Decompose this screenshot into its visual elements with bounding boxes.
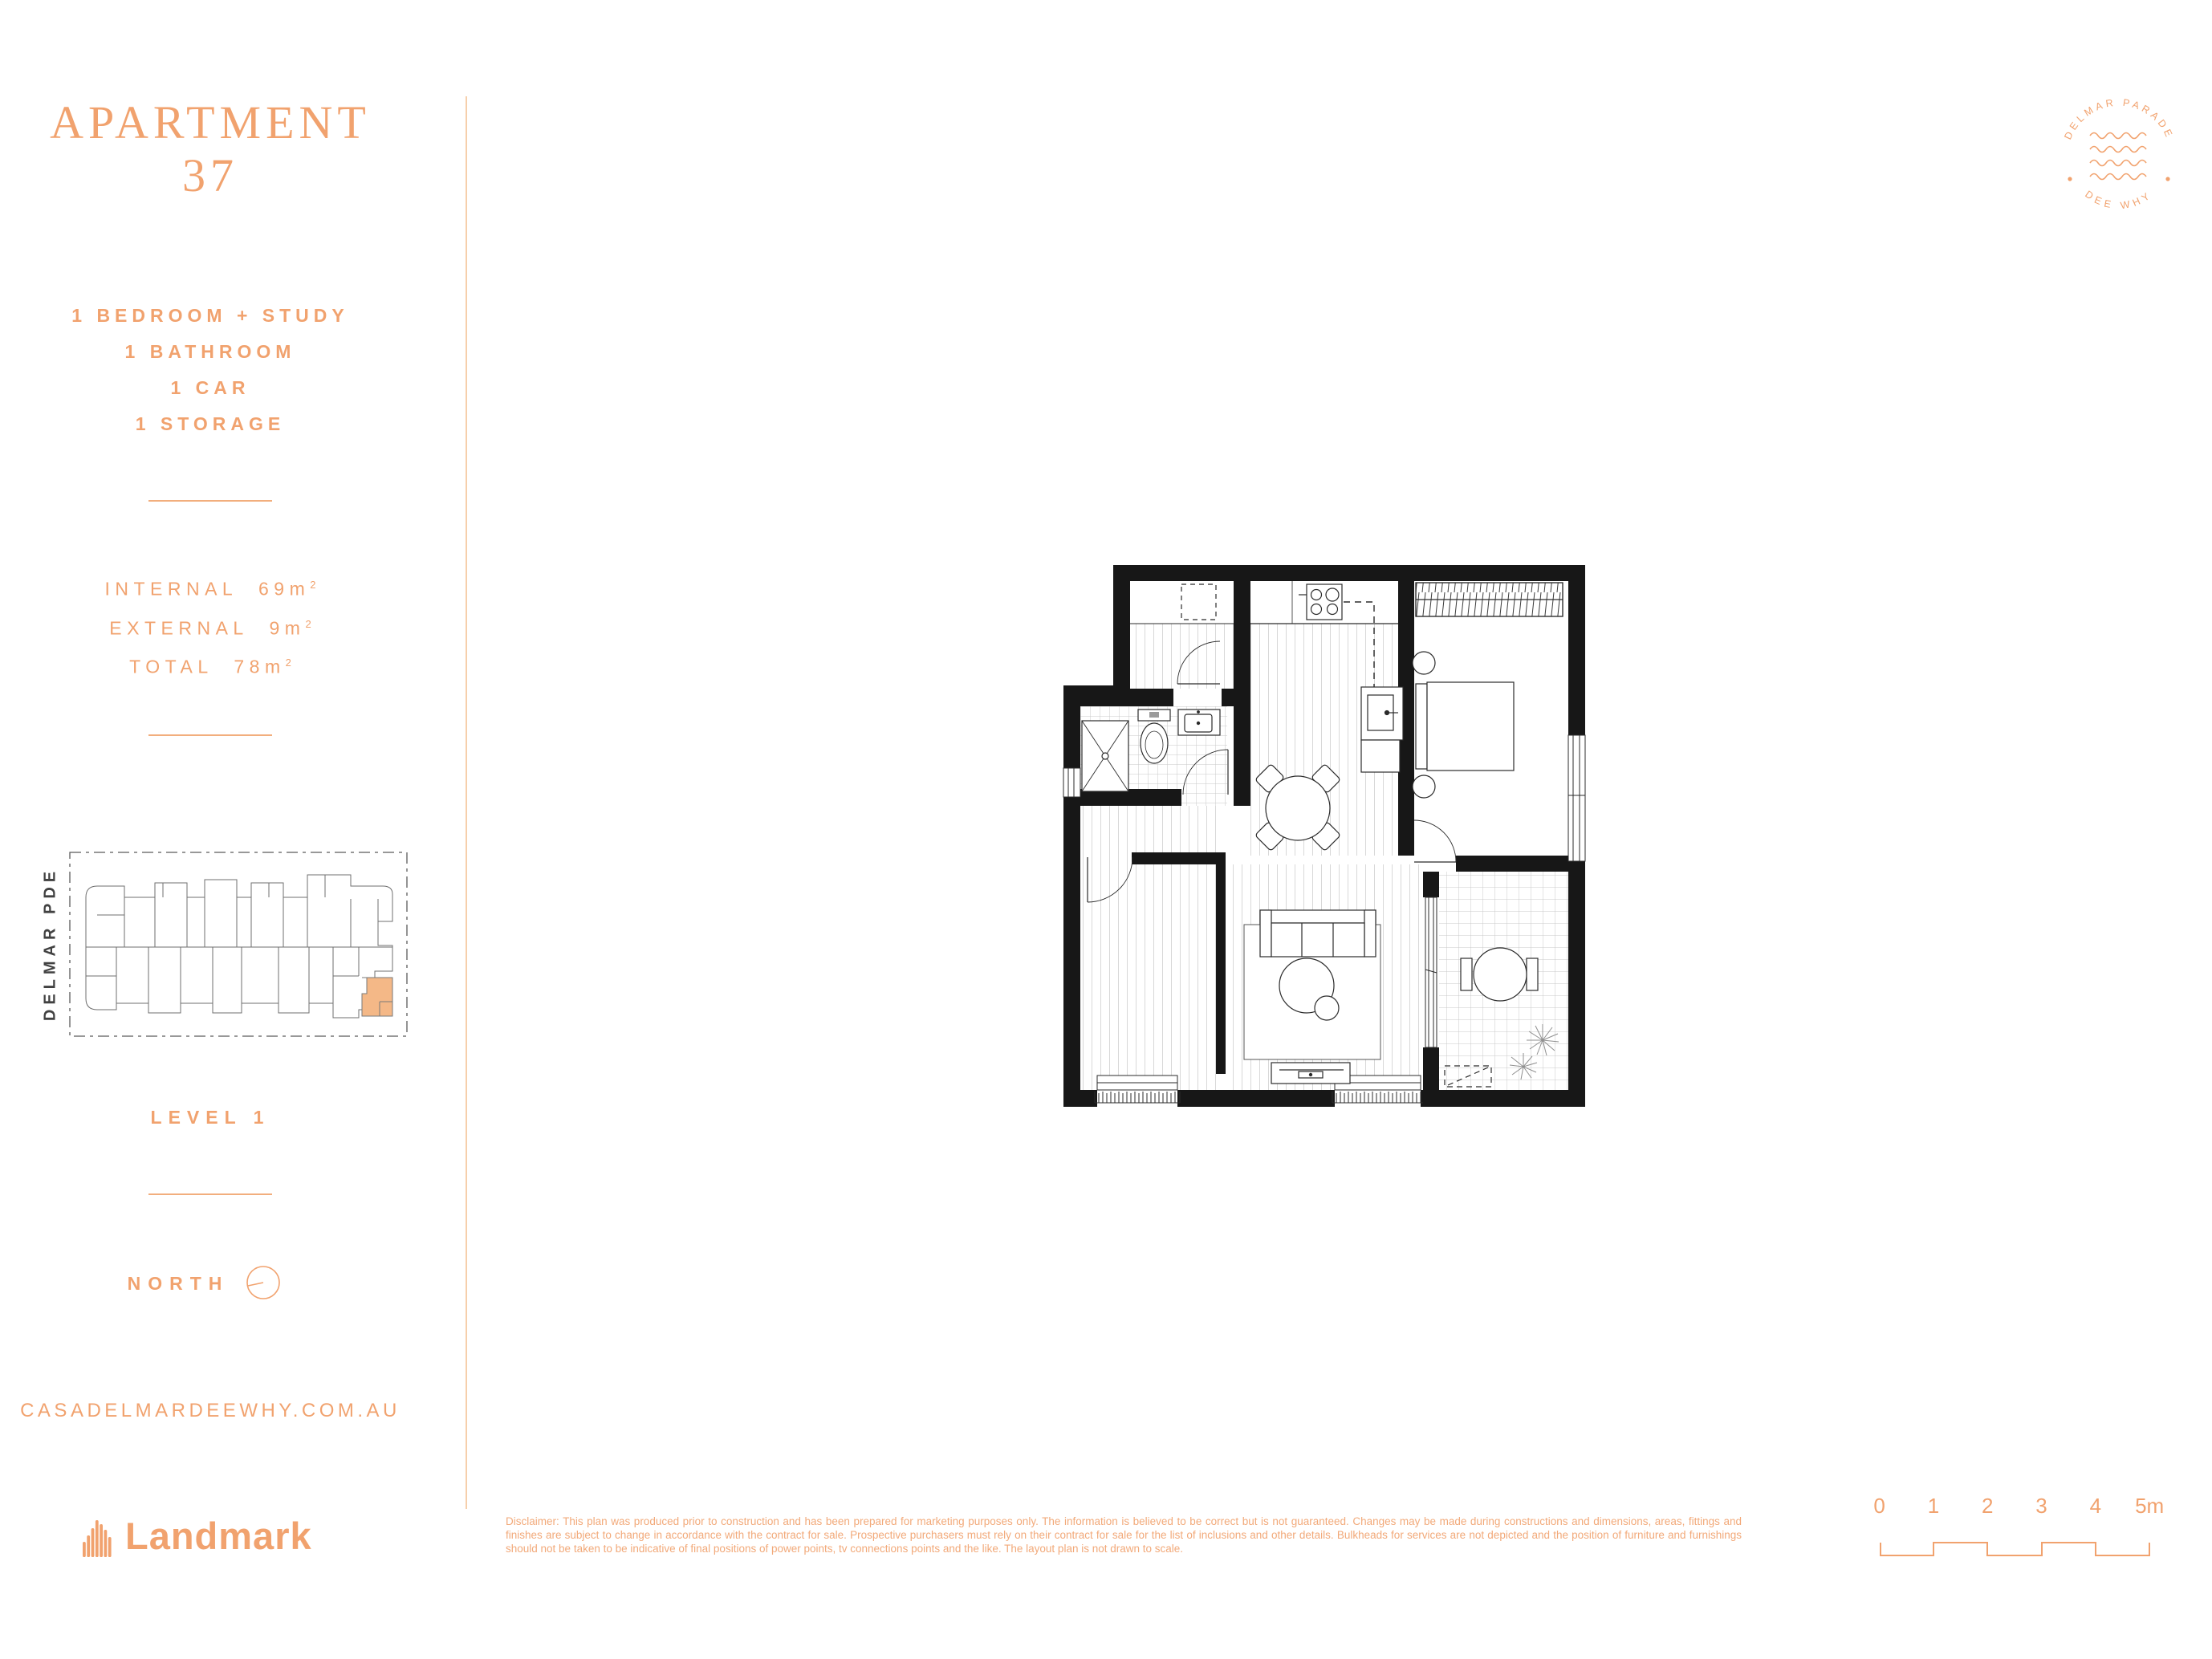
feature-item: 1 BEDROOM + STUDY [0,298,421,334]
stamp-dot-right [2165,177,2169,181]
website-link[interactable]: CASADELMARDEEWHY.COM.AU [0,1400,421,1422]
balcony-sliding-door [1425,897,1437,1047]
wall [1568,581,1585,735]
sofa-icon [1260,910,1376,957]
feature-item: 1 BATHROOM [0,334,421,370]
wall [1063,1090,1097,1107]
landmark-wordmark: Landmark [125,1515,312,1557]
bathroom-window [1063,768,1080,797]
side-table [1315,996,1339,1020]
divider [148,734,272,736]
living [1244,910,1380,1084]
svg-text:DELMAR PARADE: DELMAR PARADE [2062,97,2176,141]
wall [1113,581,1130,689]
balcony-table [1474,948,1527,1001]
scale-tick-label: 4 [2068,1494,2122,1519]
vanity-icon [1178,710,1220,735]
keyplan-boundary [70,852,407,1036]
balcony-chair [1461,958,1472,990]
feature-list: 1 BEDROOM + STUDY1 BATHROOM1 CAR1 STORAG… [0,298,421,442]
level-label: LEVEL 1 [0,1107,421,1128]
wall [1177,1090,1335,1107]
stamp-top-text: DELMAR PARADE [2062,97,2176,141]
page-title: APARTMENT 37 [0,96,421,202]
wall [1421,1090,1585,1107]
laundry [1130,584,1234,624]
vertical-divider [466,96,467,1509]
washer-icon [1181,584,1216,620]
area-list: INTERNAL 69m2 EXTERNAL 9m2 TOTAL 78m2 [0,567,421,685]
bedroom-window [1568,735,1585,861]
waves-icon [2090,133,2146,180]
laundry-floor [1130,624,1234,689]
stamp-dot-left [2068,177,2072,181]
page-title-line1: APARTMENT [0,96,421,149]
bedroom-door [1414,820,1456,862]
wall [1234,581,1250,806]
apartment-number: 37 [0,149,421,202]
building-footprint [86,875,392,1018]
kitchen-bench [1361,740,1400,772]
wall [1063,685,1080,768]
bed-icon [1416,682,1514,771]
scale-bar-labels: 012345m [1852,1494,2177,1519]
feature-item: 1 CAR [0,370,421,406]
disclaimer-text: Disclaimer: This plan was produced prior… [506,1515,1742,1555]
area-item: TOTAL 78m2 [0,645,421,685]
wall [1568,861,1585,1090]
scale-tick-label: 5m [2122,1494,2176,1519]
bedside-table [1413,652,1435,674]
key-plan [68,851,409,1038]
shower-icon [1082,721,1128,791]
scale-tick-label: 0 [1852,1494,1906,1519]
wall [1063,797,1080,1107]
tv-unit-icon [1271,1063,1350,1084]
wall [1423,872,1439,897]
wall [1456,856,1585,872]
wall [1216,864,1226,1074]
wall [1130,689,1173,706]
area-item: EXTERNAL 9m2 [0,607,421,646]
delmar-parade-stamp: DELMAR PARADE DEE WHY [2039,77,2199,238]
island-sink [1361,687,1403,740]
svg-text:DEE WHY: DEE WHY [2083,189,2155,211]
floor-plan [1061,562,1591,1108]
wall [1113,565,1585,581]
dining-table [1266,776,1330,840]
cooktop-icon [1299,584,1342,620]
north-compass-icon [246,1265,281,1300]
study-window [1095,1076,1180,1103]
street-label: DELMAR PDE [42,867,60,1021]
wall [1132,852,1226,864]
wardrobe-icon [1416,583,1563,616]
highlighted-unit [362,978,392,1016]
wall [1423,1047,1439,1090]
toilet-icon [1138,710,1170,763]
area-item: INTERNAL 69m2 [0,567,421,607]
stamp-bottom-text: DEE WHY [2083,189,2155,211]
brochure-page: { "accent": "#F1A26E", "highlight": "#F4… [0,0,2212,1659]
scale-tick-label: 3 [2015,1494,2068,1519]
divider [148,500,272,502]
dining [1255,764,1341,852]
scale-tick-label: 2 [1961,1494,2015,1519]
balcony-chair [1527,958,1538,990]
landmark-logo-icon [83,1517,116,1557]
feature-item: 1 STORAGE [0,406,421,442]
study-hall-floor [1080,806,1216,1090]
scale-tick-label: 1 [1906,1494,1960,1519]
divider [148,1193,272,1195]
bedside-table [1413,775,1435,798]
bedroom [1413,583,1563,798]
scale-bar [1880,1541,2151,1557]
